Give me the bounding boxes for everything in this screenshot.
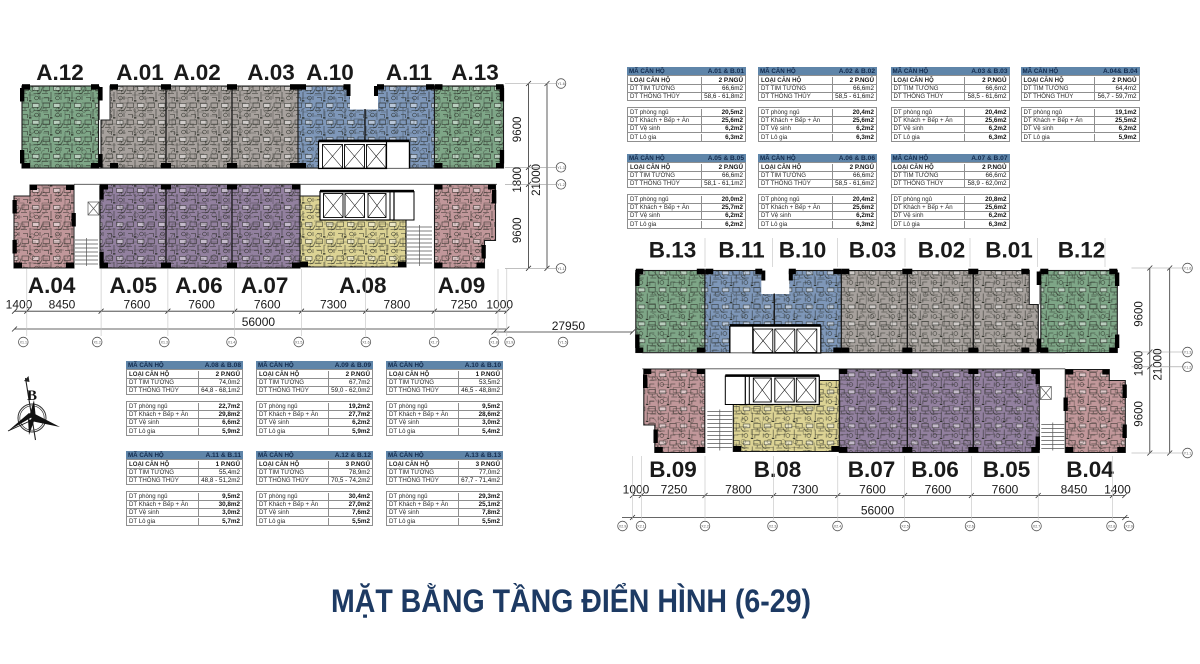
svg-text:X2.7: X2.7	[1033, 525, 1040, 529]
svg-text:7800: 7800	[384, 298, 411, 312]
svg-text:27950: 27950	[552, 319, 586, 333]
svg-text:B.05: B.05	[983, 457, 1031, 482]
svg-text:7600: 7600	[254, 298, 281, 312]
svg-text:B.04: B.04	[1066, 457, 1114, 482]
svg-text:X1.3: X1.3	[161, 341, 168, 345]
svg-text:X1.8: X1.8	[490, 341, 497, 345]
svg-text:A.10: A.10	[306, 60, 354, 85]
svg-text:Y1.6: Y1.6	[1184, 267, 1191, 271]
svg-text:Y1.1: Y1.1	[1184, 452, 1191, 456]
svg-text:7300: 7300	[320, 298, 347, 312]
svg-text:A.06: A.06	[175, 273, 223, 298]
svg-text:B.09: B.09	[649, 457, 697, 482]
svg-text:A.08: A.08	[339, 273, 387, 298]
svg-text:X2.9: X2.9	[619, 525, 626, 529]
svg-text:B.06: B.06	[911, 457, 959, 482]
svg-text:B: B	[27, 388, 37, 404]
svg-text:A.09: A.09	[438, 273, 486, 298]
svg-text:Y1.1: Y1.1	[557, 267, 564, 271]
svg-text:1800: 1800	[512, 167, 524, 193]
svg-text:B.07: B.07	[848, 457, 896, 482]
svg-text:7600: 7600	[859, 483, 886, 497]
svg-text:7600: 7600	[925, 483, 952, 497]
svg-text:56000: 56000	[861, 504, 895, 518]
svg-text:Y1.2: Y1.2	[557, 183, 564, 187]
svg-text:Y1.6: Y1.6	[557, 82, 564, 86]
svg-text:9600: 9600	[1134, 401, 1146, 427]
svg-text:X2.1: X2.1	[637, 525, 644, 529]
svg-text:8450: 8450	[1061, 483, 1088, 497]
svg-text:B.12: B.12	[1058, 238, 1106, 263]
svg-text:X1.9: X1.9	[506, 341, 513, 345]
svg-text:X1.2: X1.2	[93, 341, 100, 345]
svg-text:B.10: B.10	[779, 238, 827, 263]
svg-text:X2.5: X2.5	[901, 525, 908, 529]
svg-text:7250: 7250	[661, 483, 688, 497]
svg-text:B.03: B.03	[849, 238, 897, 263]
svg-text:9600: 9600	[1134, 301, 1146, 327]
svg-text:7600: 7600	[188, 298, 215, 312]
svg-text:21000: 21000	[1153, 349, 1165, 381]
svg-text:B.01: B.01	[985, 238, 1033, 263]
svg-text:7600: 7600	[992, 483, 1019, 497]
svg-text:X2.2: X2.2	[701, 525, 708, 529]
svg-text:9600: 9600	[512, 218, 524, 244]
svg-text:7250: 7250	[451, 298, 478, 312]
svg-text:A.07: A.07	[241, 273, 289, 298]
svg-text:A.05: A.05	[110, 273, 158, 298]
svg-text:9600: 9600	[512, 117, 524, 143]
svg-text:X1.5: X1.5	[295, 341, 302, 345]
svg-text:Y1.2: Y1.2	[1184, 365, 1191, 369]
svg-text:1800: 1800	[1134, 351, 1146, 377]
svg-text:MẶT BẰNG TẦNG ĐIỂN HÌNH (6-29): MẶT BẰNG TẦNG ĐIỂN HÌNH (6-29)	[331, 582, 811, 619]
svg-text:X1.6: X1.6	[362, 341, 369, 345]
svg-text:A.01: A.01	[116, 60, 164, 85]
svg-text:X2.8: X2.8	[1108, 525, 1115, 529]
svg-text:A.11: A.11	[386, 60, 432, 85]
svg-text:Y1.3: Y1.3	[557, 166, 564, 170]
svg-text:X2.9: X2.9	[1125, 525, 1132, 529]
svg-text:7800: 7800	[725, 483, 752, 497]
svg-text:A.04: A.04	[28, 273, 76, 298]
svg-text:1400: 1400	[1104, 483, 1131, 497]
svg-text:B.11: B.11	[718, 238, 764, 263]
svg-text:B.02: B.02	[918, 238, 966, 263]
svg-text:A.02: A.02	[173, 60, 221, 85]
svg-text:A.03: A.03	[247, 60, 295, 85]
svg-text:X2.3: X2.3	[769, 525, 776, 529]
svg-text:A.13: A.13	[451, 60, 499, 85]
svg-text:7600: 7600	[124, 298, 151, 312]
svg-text:B.13: B.13	[649, 238, 697, 263]
svg-text:7300: 7300	[792, 483, 819, 497]
svg-text:1000: 1000	[623, 483, 650, 497]
svg-text:21000: 21000	[531, 164, 543, 196]
svg-text:Y1.5: Y1.5	[559, 341, 566, 345]
svg-text:8450: 8450	[49, 298, 76, 312]
svg-text:X2.6: X2.6	[966, 525, 973, 529]
svg-text:X1.7: X1.7	[430, 341, 437, 345]
svg-text:A.12: A.12	[36, 60, 84, 85]
svg-text:Y1.3: Y1.3	[1184, 351, 1191, 355]
svg-text:56000: 56000	[242, 315, 276, 329]
svg-text:X2.4: X2.4	[834, 525, 841, 529]
svg-text:X1.4: X1.4	[228, 341, 235, 345]
svg-text:B.08: B.08	[754, 457, 802, 482]
svg-text:X1.1: X1.1	[20, 341, 27, 345]
